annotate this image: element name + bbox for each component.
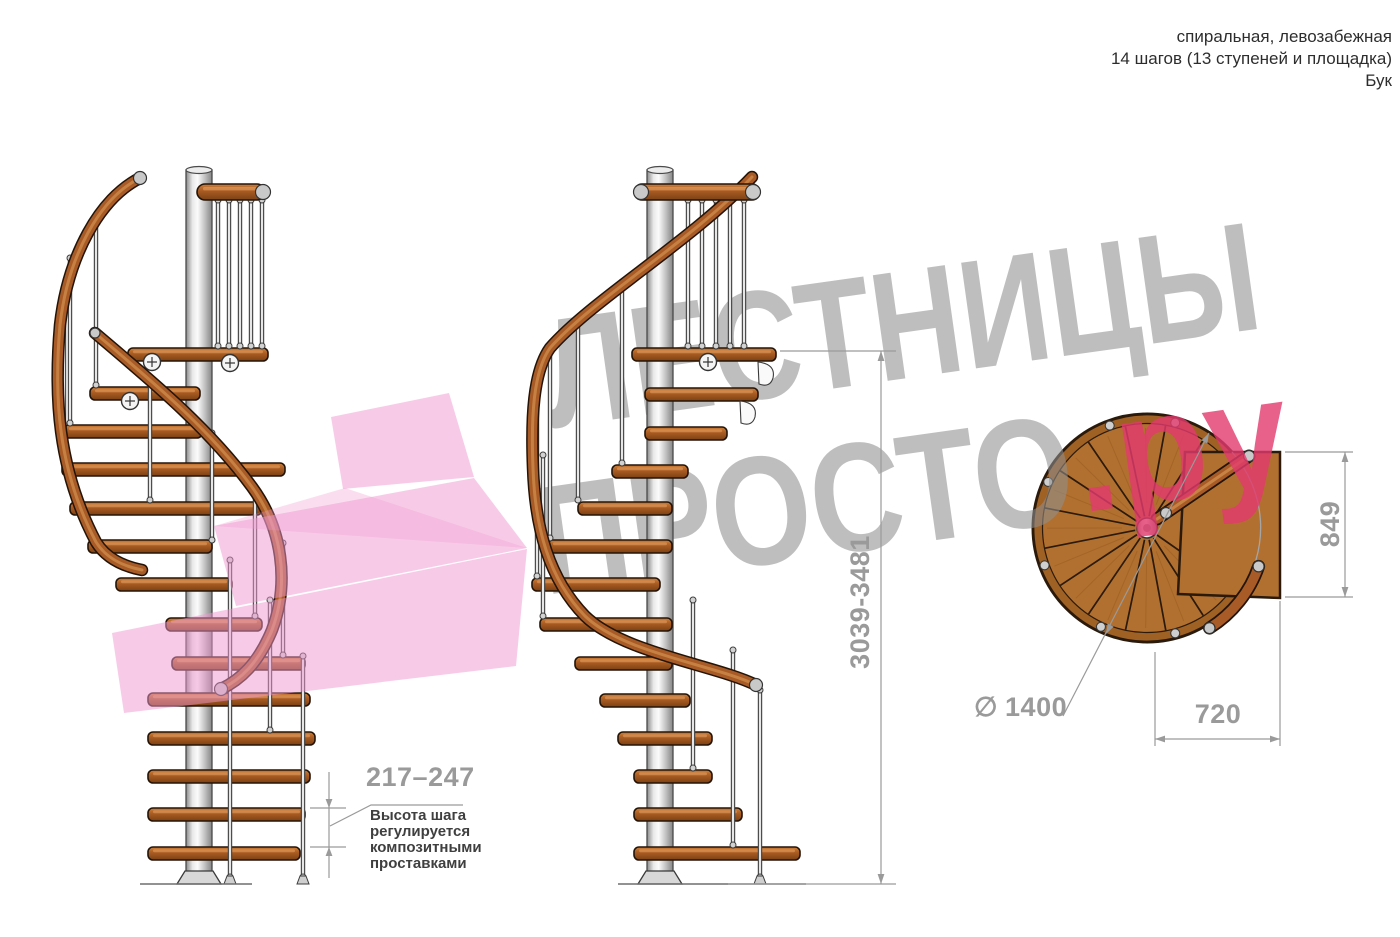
technical-drawing-page: ЛЕСТНИЦЫ ПРОСТО .ру bbox=[0, 0, 1400, 937]
step-board bbox=[148, 808, 305, 821]
step-board bbox=[148, 847, 300, 860]
pole-base-flange bbox=[177, 871, 221, 884]
pink-shape-block bbox=[331, 393, 474, 489]
top-guard-rail-cap bbox=[746, 185, 761, 200]
step-board bbox=[645, 388, 758, 401]
plan-curved-rail-cap-bottom bbox=[1204, 623, 1215, 634]
step-board bbox=[612, 465, 688, 478]
drawing-scene: ЛЕСТНИЦЫ ПРОСТО .ру bbox=[0, 0, 1400, 937]
step-board bbox=[90, 387, 200, 400]
step-board bbox=[70, 502, 262, 515]
watermark-domain-suffix: .ру bbox=[1062, 344, 1299, 545]
top-guard-rail-sheen bbox=[203, 187, 257, 190]
handrail-connector bbox=[90, 328, 100, 338]
pole-base-flange bbox=[638, 871, 682, 884]
step-board bbox=[64, 425, 202, 438]
handrail-end-cap bbox=[750, 679, 763, 692]
step-board bbox=[618, 732, 712, 745]
top-guard-rail-sheen bbox=[641, 187, 753, 190]
plan-curved-rail-cap-top bbox=[1253, 561, 1264, 572]
step-board bbox=[116, 578, 232, 591]
top-guard-rail bbox=[634, 184, 760, 200]
step-board bbox=[634, 770, 712, 783]
top-guard-rail-cap bbox=[634, 185, 649, 200]
step-board bbox=[645, 427, 727, 440]
handrail-end-cap bbox=[134, 172, 147, 185]
top-guard-rail bbox=[197, 184, 265, 200]
step-board bbox=[634, 847, 800, 860]
leader-line bbox=[330, 805, 463, 826]
step-board bbox=[634, 808, 742, 821]
step-board bbox=[62, 463, 285, 476]
step-board bbox=[532, 578, 660, 591]
step-board bbox=[600, 694, 690, 707]
step-board bbox=[548, 540, 672, 553]
step-board bbox=[578, 502, 672, 515]
top-guard-rail-cap bbox=[256, 185, 271, 200]
